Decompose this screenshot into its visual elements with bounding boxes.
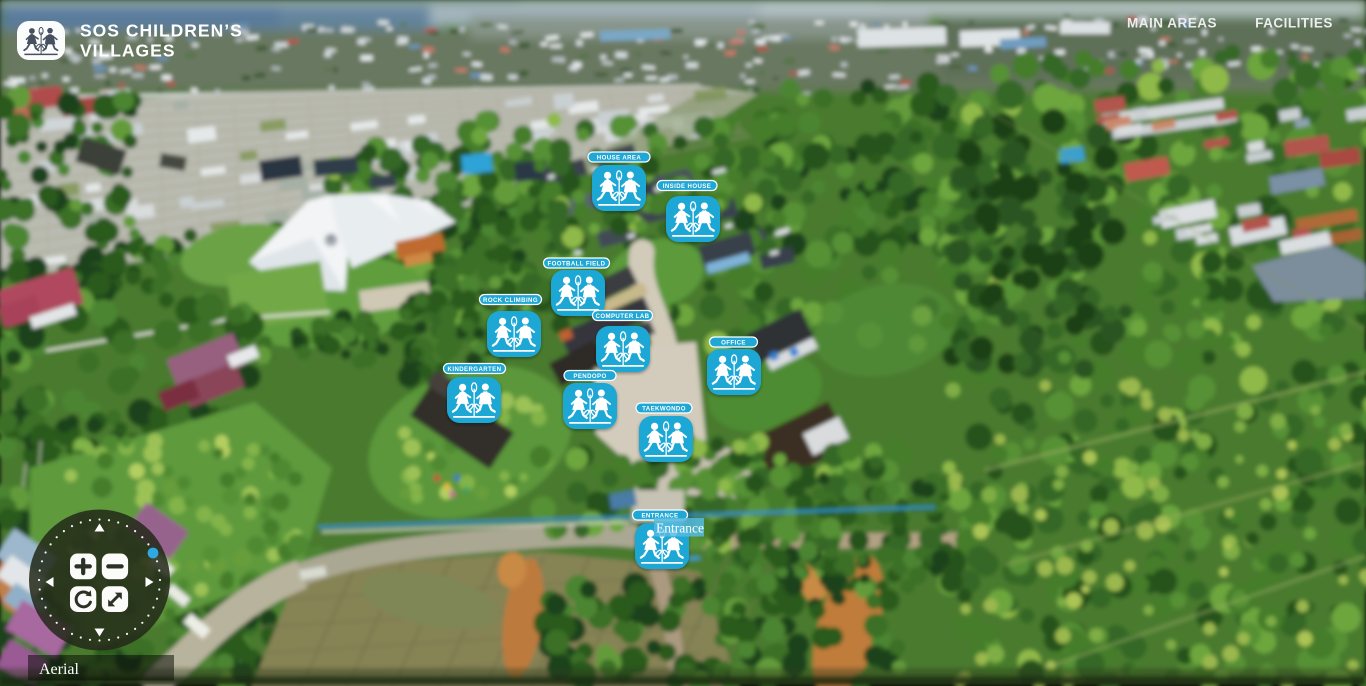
svg-text:Entrance: Entrance <box>656 521 704 536</box>
svg-text:INSIDE HOUSE: INSIDE HOUSE <box>663 183 711 190</box>
svg-text:COMPUTER LAB: COMPUTER LAB <box>596 313 650 320</box>
svg-text:HOUSE AREA: HOUSE AREA <box>597 154 642 161</box>
svg-text:FACILITIES: FACILITIES <box>1255 16 1333 31</box>
svg-text:PENDOPO: PENDOPO <box>573 373 606 380</box>
svg-text:KINDERGARTEN: KINDERGARTEN <box>448 366 502 373</box>
svg-text:FOOTBALL FIELD: FOOTBALL FIELD <box>548 260 606 267</box>
svg-text:MAIN AREAS: MAIN AREAS <box>1127 16 1217 31</box>
svg-text:Aerial: Aerial <box>39 661 80 678</box>
svg-text:ROCK CLIMBING: ROCK CLIMBING <box>483 297 538 304</box>
svg-text:SOS CHILDREN’S: SOS CHILDREN’S <box>80 21 243 41</box>
svg-text:VILLAGES: VILLAGES <box>80 41 176 61</box>
svg-text:TAEKWONDO: TAEKWONDO <box>642 405 686 412</box>
svg-text:OFFICE: OFFICE <box>721 339 746 346</box>
